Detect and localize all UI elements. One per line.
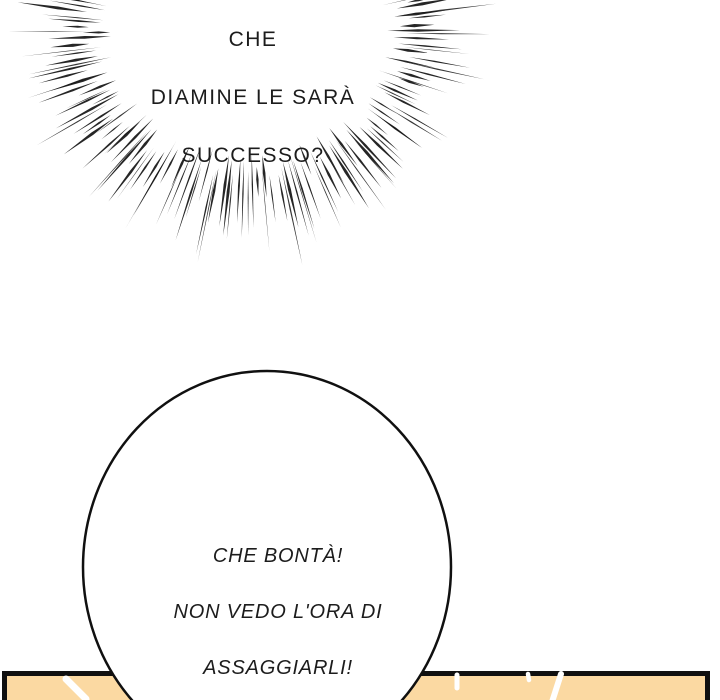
- burst-speed-line: [52, 51, 97, 57]
- burst-speech-text: CHE DIAMINE LE SARÀ SUCCESSO?: [103, 0, 403, 199]
- burst-speed-line: [400, 24, 435, 27]
- burst-speed-line: [407, 33, 490, 34]
- burst-speed-line: [62, 26, 88, 28]
- speech-line: DIAMINE LE SARÀ: [103, 83, 403, 112]
- burst-speed-line: [409, 57, 470, 68]
- burst-speed-line: [29, 57, 111, 74]
- burst-speed-line: [18, 2, 87, 12]
- burst-speed-line: [397, 0, 458, 8]
- burst-speed-line: [50, 44, 89, 48]
- table-highlight-streak: [528, 674, 529, 680]
- burst-speed-line: [398, 44, 461, 50]
- burst-speed-line: [48, 36, 110, 39]
- burst-speed-line: [8, 31, 87, 32]
- burst-speed-line: [42, 15, 103, 21]
- burst-speed-line: [21, 47, 101, 56]
- speech-line: NON VEDO L'ORA DI: [117, 598, 439, 626]
- burst-speed-line: [28, 74, 103, 98]
- speech-line: SUCCESSO?: [103, 141, 403, 170]
- speech-line: CHE BONTÀ!: [117, 542, 439, 570]
- round-speech-text: CHE BONTÀ! NON VEDO L'ORA DI ASSAGGIARLI…: [117, 514, 439, 700]
- comic-panel: CHE DIAMINE LE SARÀ SUCCESSO? CHE BONTÀ!…: [0, 0, 720, 700]
- speech-line: CHE: [103, 25, 403, 54]
- speech-line: ASSAGGIARLI!: [117, 654, 439, 682]
